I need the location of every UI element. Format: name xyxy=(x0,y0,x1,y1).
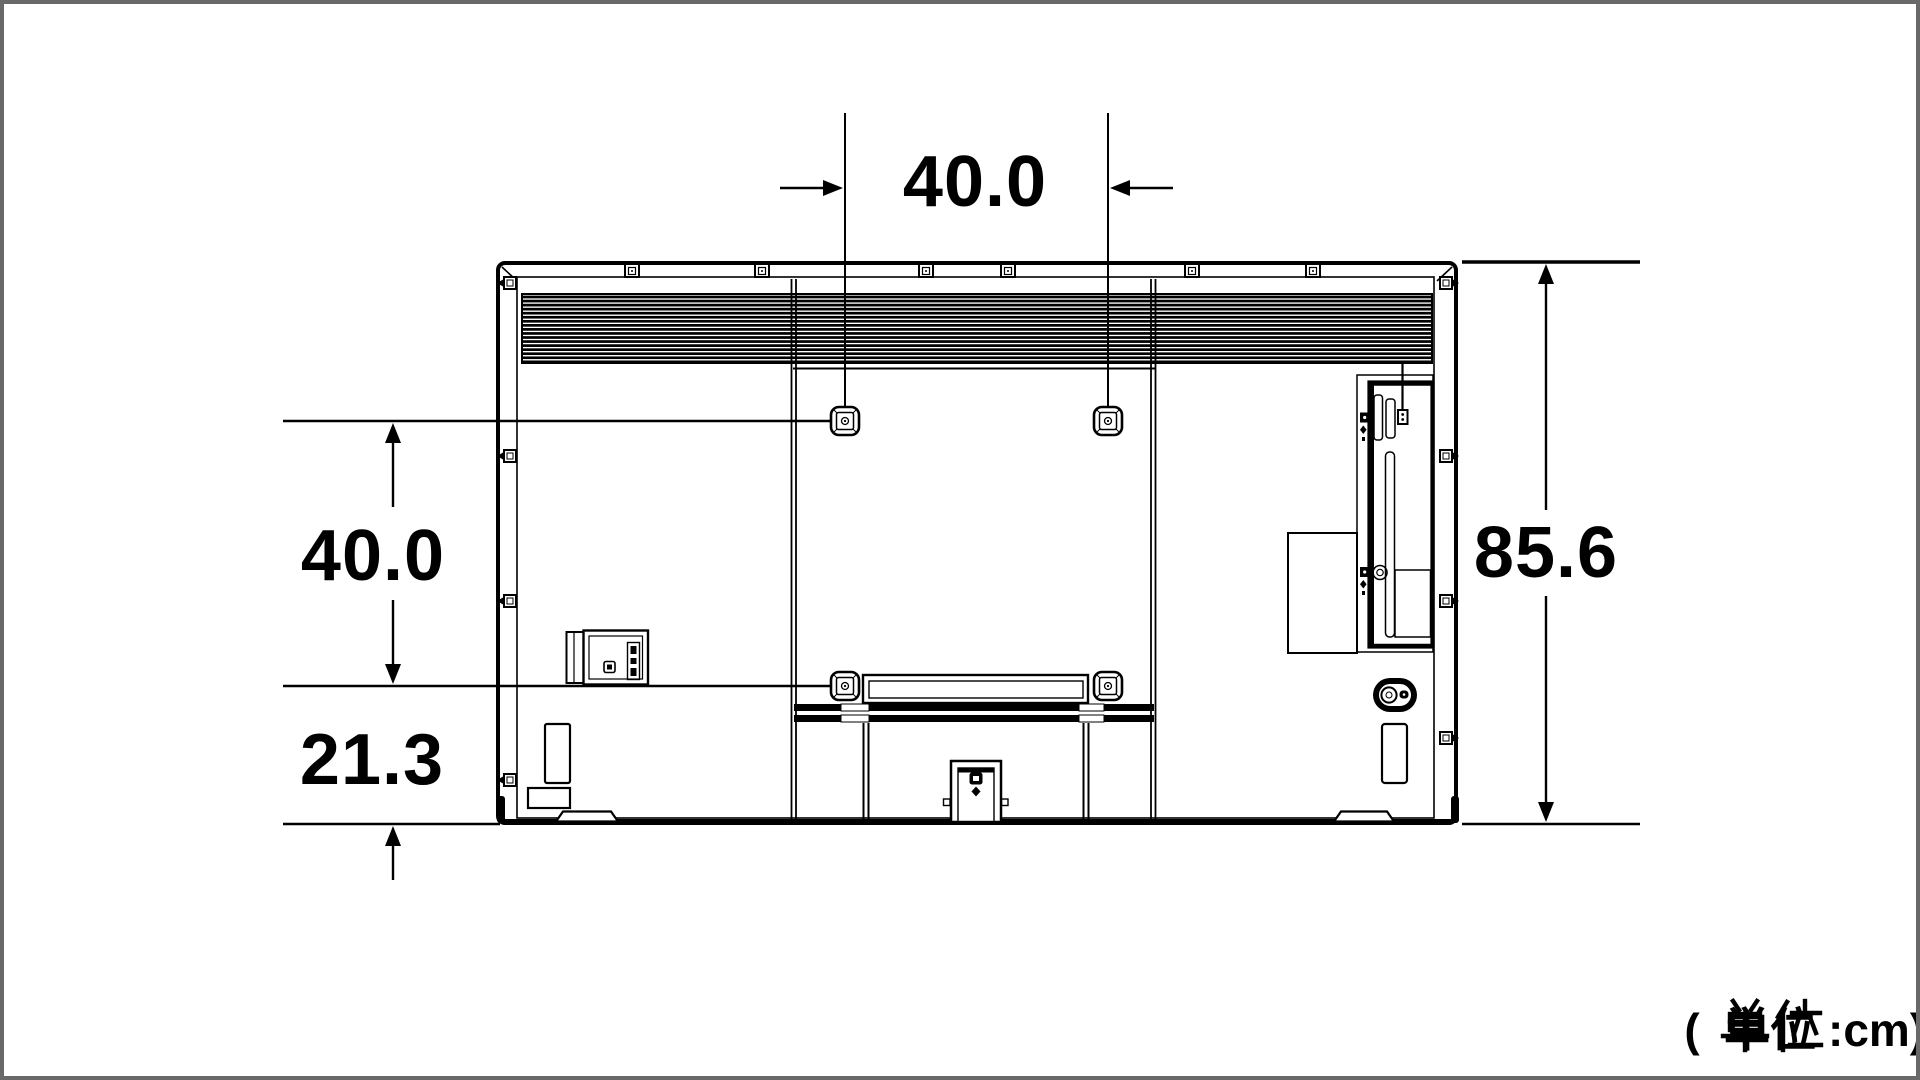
vesa-hole-bottom-left xyxy=(831,672,859,700)
unit-note-prefix: ( xyxy=(1684,1004,1700,1056)
dim-label-top: 40.0 xyxy=(903,142,1047,222)
top-clip-icon xyxy=(1185,264,1199,277)
vesa-hole-bottom-right xyxy=(1094,672,1122,700)
arrow-right-icon xyxy=(823,180,843,196)
foot-left xyxy=(556,812,618,822)
arrow-down-icon xyxy=(1538,802,1554,822)
dim-label-left: 40.0 xyxy=(301,516,445,596)
top-clip-icon xyxy=(1306,264,1320,277)
ac-power-inlet xyxy=(1373,678,1417,712)
corner-block-bottom-right xyxy=(1451,796,1459,823)
dim-label-overall-height: 85.6 xyxy=(1474,513,1618,593)
top-clip-icon xyxy=(625,264,639,277)
tv-rear-dimension-diagram: 40.0 40.0 21.3 85.6 ( 単位 xyxy=(0,0,1920,1080)
arrow-left-icon xyxy=(1110,180,1130,196)
foot-right xyxy=(1334,812,1394,822)
vesa-hole-top-left xyxy=(831,407,859,435)
top-clip-icon xyxy=(755,264,769,277)
stand-mount-cover xyxy=(944,761,1009,822)
unit-note: ( 単位 :cm) xyxy=(1684,1001,1916,1056)
top-clip-icon xyxy=(919,264,933,277)
vent-band xyxy=(522,294,1432,369)
cable-connector xyxy=(1398,410,1408,424)
dim-label-bottom-offset: 21.3 xyxy=(300,720,444,800)
arrow-down-icon xyxy=(385,664,401,684)
unit-note-suffix: :cm) xyxy=(1828,1004,1916,1056)
diagram-svg: 40.0 40.0 21.3 85.6 ( 単位 xyxy=(4,4,1916,1076)
top-clip-icon xyxy=(1001,264,1015,277)
vesa-hole-top-right xyxy=(1094,407,1122,435)
dimension-overall-height: 85.6 xyxy=(1462,262,1640,824)
corner-block-bottom-left xyxy=(497,796,505,823)
side-terminal-module xyxy=(567,631,649,685)
dimension-bottom-offset: 21.3 xyxy=(283,720,500,880)
